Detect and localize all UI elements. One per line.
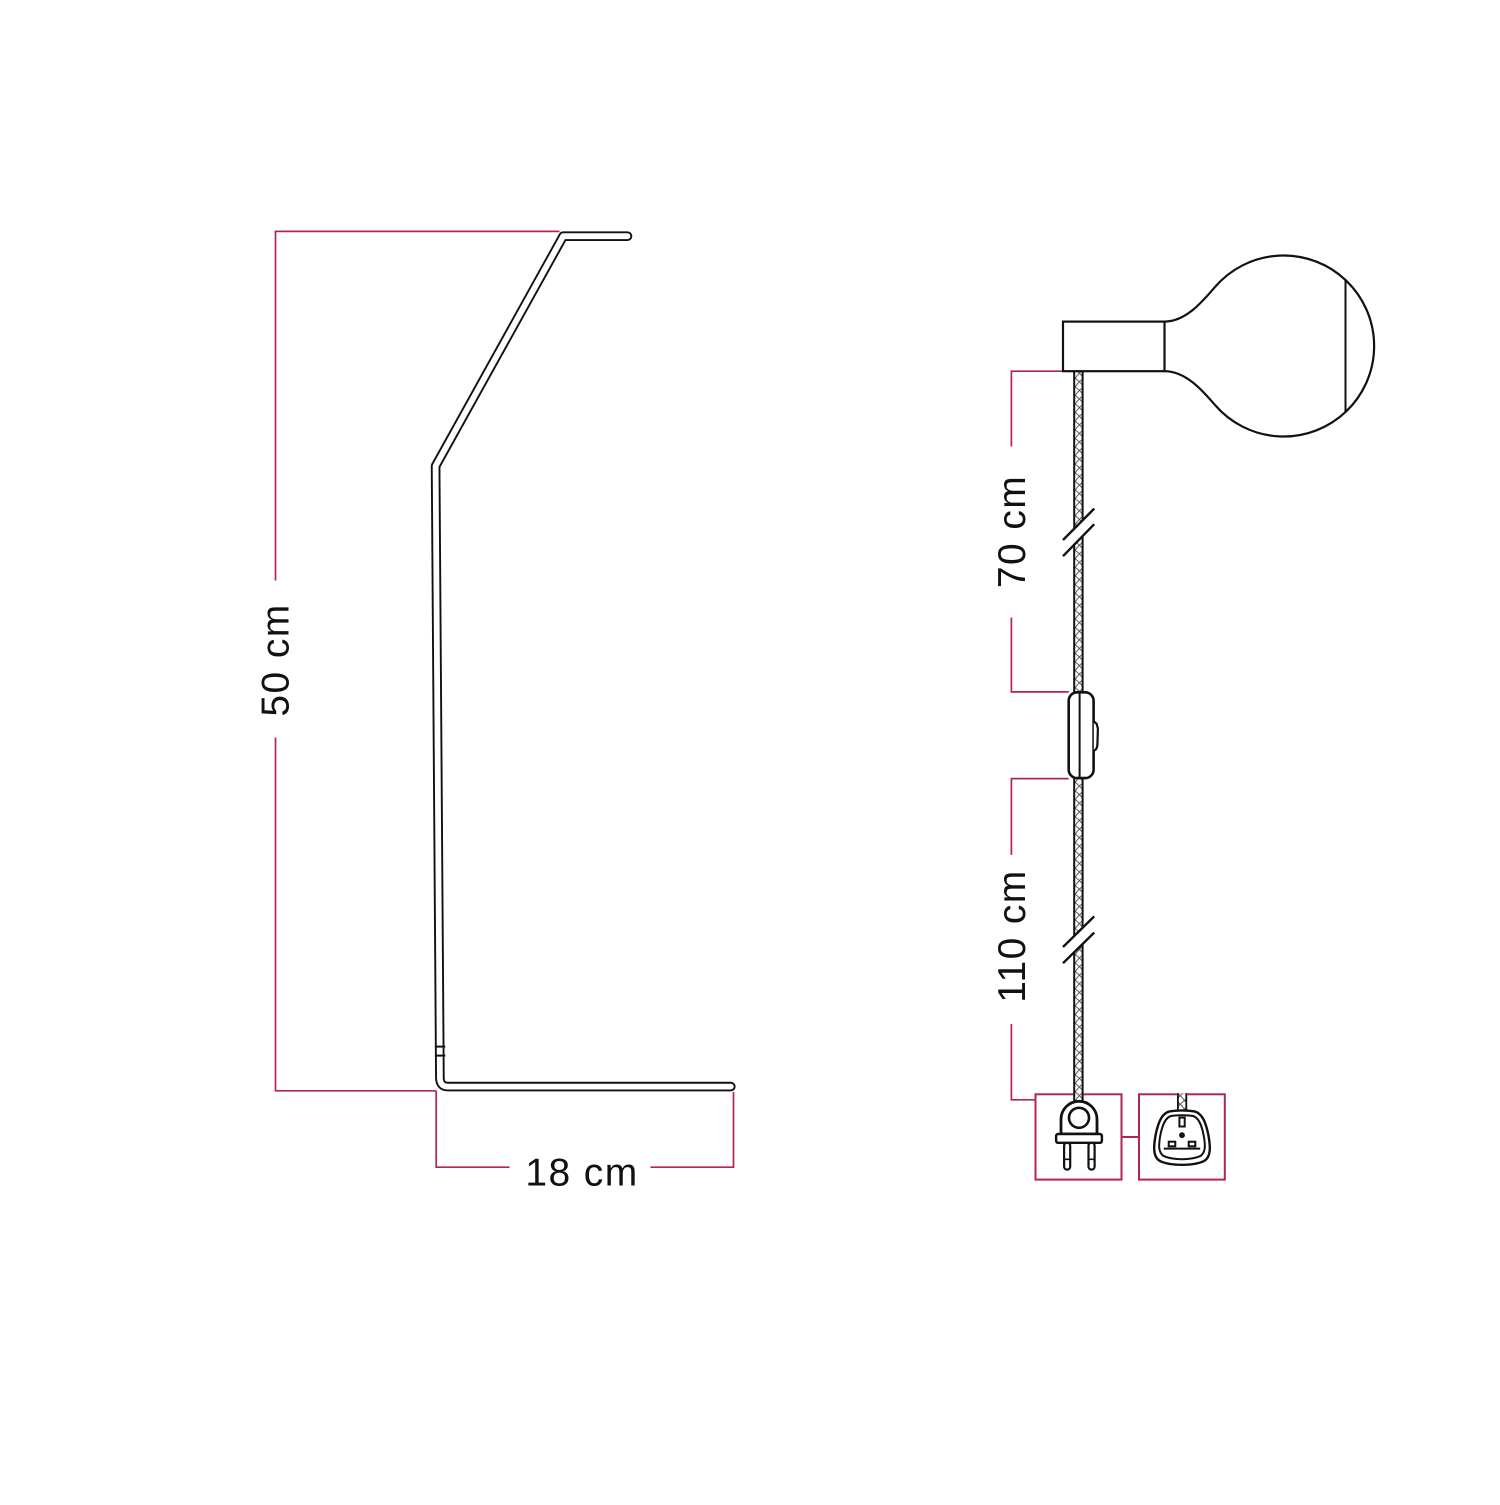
svg-text:18 cm: 18 cm [525,1152,638,1195]
svg-text:110 cm: 110 cm [991,869,1034,1002]
svg-text:50 cm: 50 cm [255,603,298,716]
svg-text:70 cm: 70 cm [991,475,1034,588]
